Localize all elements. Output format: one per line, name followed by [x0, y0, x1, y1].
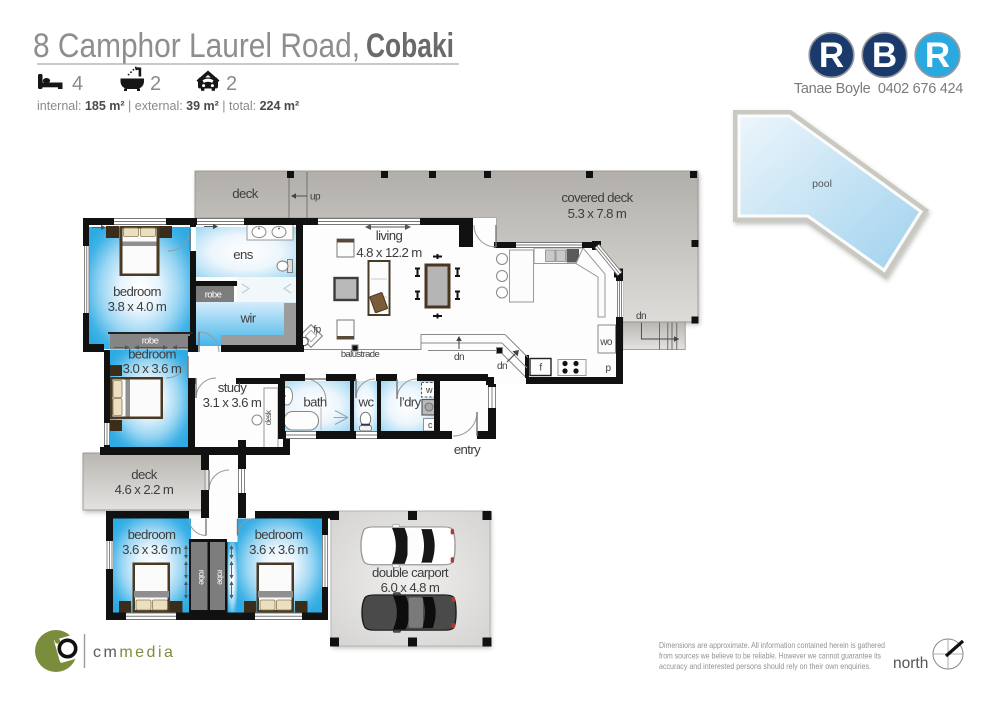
svg-text:double carport: double carport	[372, 565, 449, 580]
svg-text:desk: desk	[264, 409, 273, 425]
svg-text:dn: dn	[497, 361, 507, 372]
svg-text:up: up	[310, 192, 321, 203]
svg-text:cmmedia: cmmedia	[93, 644, 175, 661]
svg-text:north: north	[893, 655, 928, 672]
svg-text:w: w	[425, 385, 433, 395]
svg-text:2: 2	[226, 73, 237, 95]
svg-text:ens: ens	[233, 247, 253, 262]
svg-text:deck: deck	[232, 186, 258, 201]
svg-text:R: R	[925, 36, 950, 75]
svg-text:4: 4	[72, 73, 83, 95]
svg-text:bedroom: bedroom	[255, 527, 303, 542]
svg-text:3.1 x 3.6 m: 3.1 x 3.6 m	[203, 395, 262, 410]
svg-text:3.6 x 3.6 m: 3.6 x 3.6 m	[249, 542, 308, 557]
svg-text:4.6 x 2.2 m: 4.6 x 2.2 m	[115, 482, 174, 497]
svg-text:8 Camphor Laurel Road,: 8 Camphor Laurel Road,	[33, 27, 360, 65]
svg-text:wo: wo	[599, 337, 613, 348]
svg-text:entry: entry	[454, 442, 481, 457]
svg-text:3.6 x 3.6 m: 3.6 x 3.6 m	[122, 542, 181, 557]
svg-text:4.8 x 12.2 m: 4.8 x 12.2 m	[356, 245, 422, 260]
svg-text:living: living	[376, 228, 403, 243]
svg-text:pool: pool	[812, 178, 832, 190]
svg-text:wir: wir	[239, 311, 256, 326]
svg-text:bedroom: bedroom	[128, 527, 176, 542]
svg-text:internal: 185 m² | external:: internal: 185 m² | external: 39 m² | tot…	[37, 99, 299, 113]
svg-text:2: 2	[150, 73, 161, 95]
svg-text:robe: robe	[216, 570, 226, 585]
svg-text:dn: dn	[636, 311, 646, 322]
svg-text:3.8 x 4.0 m: 3.8 x 4.0 m	[108, 299, 167, 314]
svg-text:6.0 x 4.8 m: 6.0 x 4.8 m	[381, 580, 440, 595]
svg-text:covered deck: covered deck	[561, 190, 633, 205]
svg-text:Dimensions are approximate. A: Dimensions are approximate. All informat…	[659, 640, 885, 650]
svg-text:bath: bath	[303, 395, 327, 410]
svg-text:study: study	[218, 380, 248, 395]
svg-text:l’dry: l’dry	[399, 395, 421, 410]
svg-text:balustrade: balustrade	[341, 349, 380, 360]
svg-text:5.3 x 7.8 m: 5.3 x 7.8 m	[568, 206, 627, 221]
svg-text:robe: robe	[142, 336, 159, 347]
svg-text:bedroom: bedroom	[113, 284, 161, 299]
svg-text:Cobaki: Cobaki	[366, 27, 454, 65]
svg-text:3.0 x 3.6 m: 3.0 x 3.6 m	[123, 361, 182, 376]
svg-text:accuracy and interested person: accuracy and interested persons should r…	[659, 661, 871, 671]
svg-text:dn: dn	[454, 352, 464, 363]
svg-text:bedroom: bedroom	[128, 347, 176, 362]
svg-text:robe: robe	[205, 290, 222, 301]
svg-text:R: R	[819, 36, 844, 75]
svg-text:B: B	[872, 36, 897, 75]
svg-text:robe: robe	[197, 570, 207, 585]
svg-text:from sources we believe to be: from sources we believe to be reliable. …	[659, 651, 881, 661]
svg-text:fp: fp	[313, 325, 321, 336]
svg-text:wc: wc	[358, 395, 375, 410]
svg-text:deck: deck	[131, 467, 157, 482]
svg-text:Tanae Boyle 0402 676 424: Tanae Boyle 0402 676 424	[794, 81, 963, 97]
